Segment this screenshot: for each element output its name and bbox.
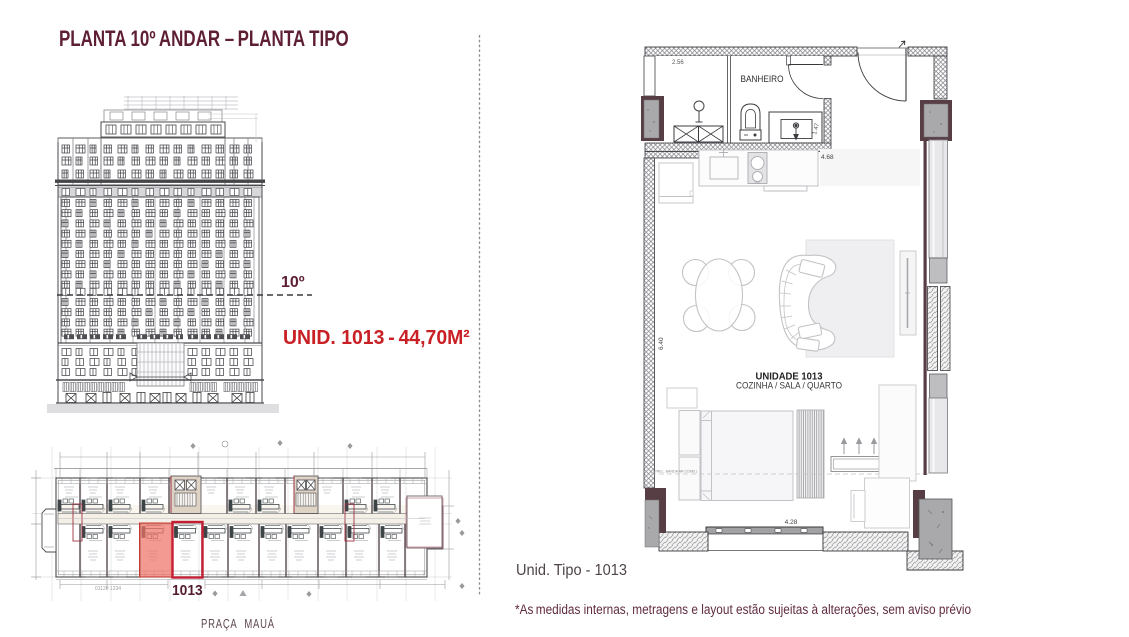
svg-text:6.40: 6.40	[658, 337, 665, 350]
svg-text:BANHEIRO: BANHEIRO	[741, 74, 784, 84]
svg-text:4.68: 4.68	[821, 154, 834, 161]
svg-text:000: 000	[755, 181, 761, 185]
svg-text:(PREL. BANDA AR COND.): (PREL. BANDA AR COND.)	[653, 470, 697, 474]
svg-text:COZINHA / SALA / QUARTO: COZINHA / SALA / QUARTO	[736, 381, 842, 391]
svg-text:4.28: 4.28	[785, 519, 798, 526]
svg-text:01120 1234: 01120 1234	[95, 586, 121, 592]
svg-text:2.56: 2.56	[672, 60, 684, 66]
